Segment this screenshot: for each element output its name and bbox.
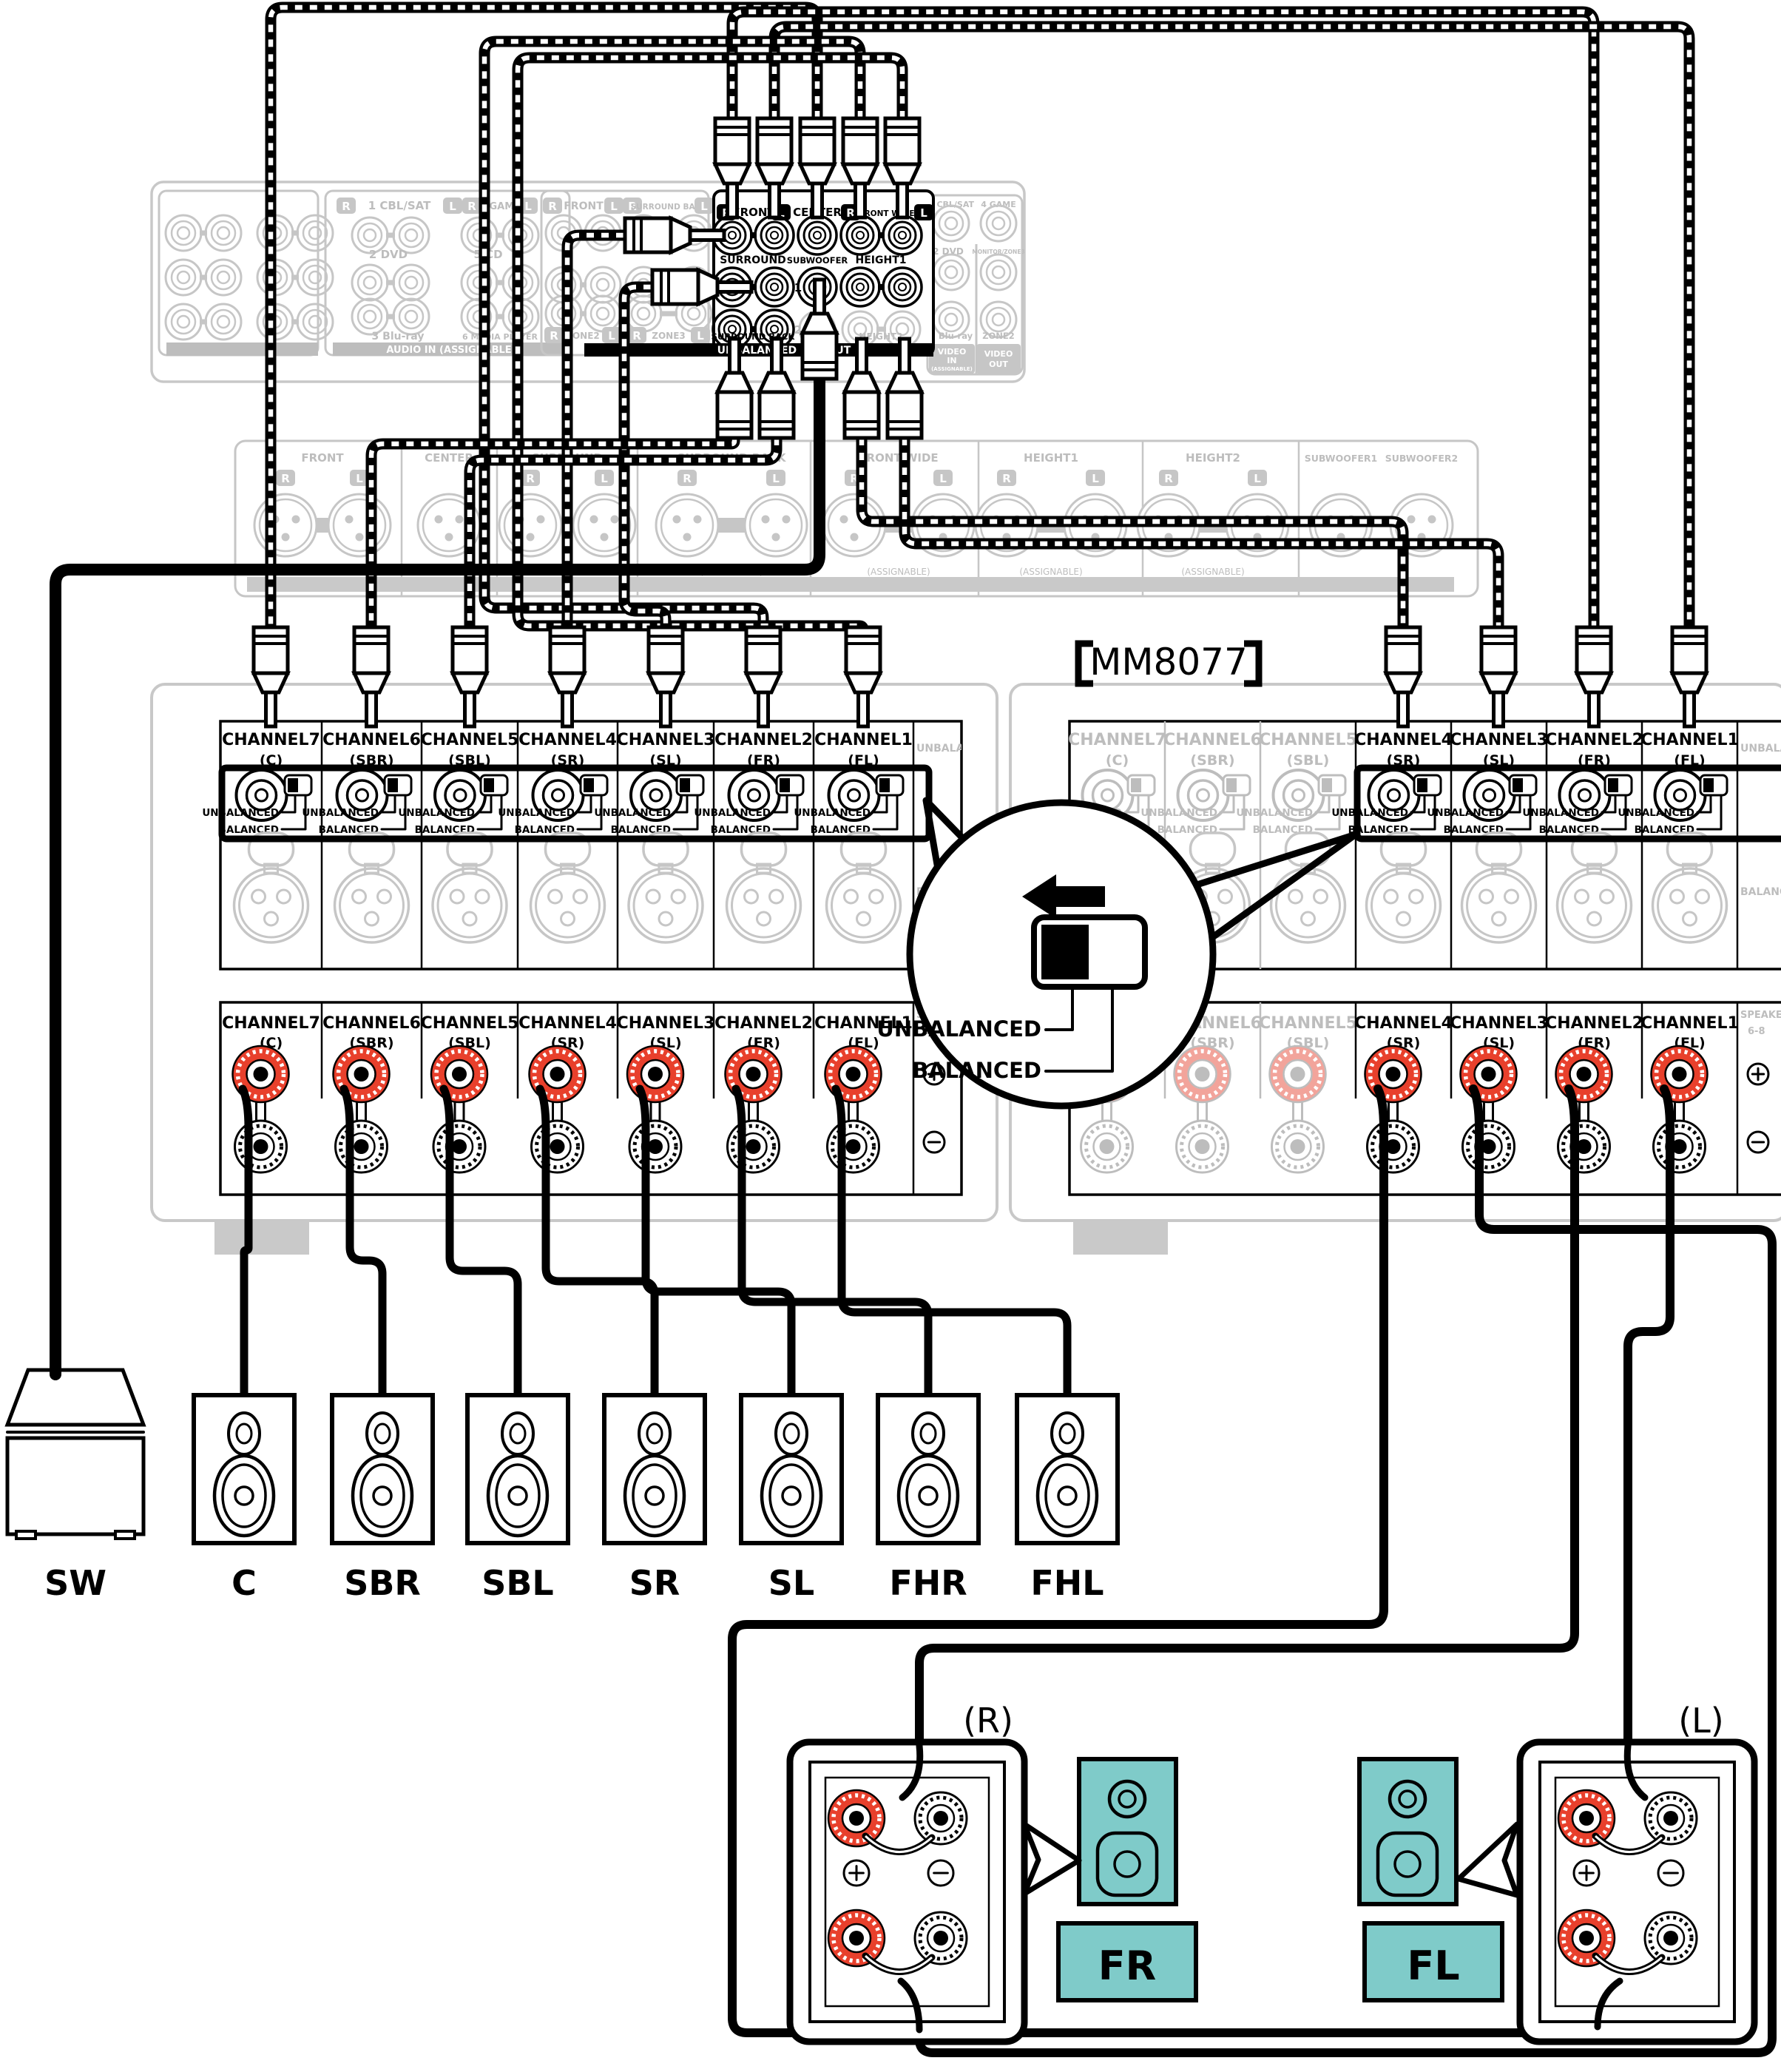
unbalanced-label: UNBALANCED (1522, 807, 1599, 819)
ring (746, 1067, 761, 1081)
xlr-link (317, 518, 328, 533)
ring (772, 533, 780, 541)
channel-name: CHANNEL5 (421, 731, 519, 749)
xlr-section-label: FRONT WIDE (859, 451, 938, 465)
badge-letter: R (342, 200, 351, 213)
balance-switch-knob (584, 778, 594, 792)
plug-body (652, 270, 698, 304)
rca-jack-gray (597, 279, 609, 291)
channel-name: CHANNEL4 (518, 1014, 617, 1033)
badge-letter: R (526, 472, 535, 485)
rca-jack-gray (364, 229, 376, 241)
rca-jack-gray (945, 266, 957, 278)
zone-label: ZONE3 (652, 331, 686, 341)
ring (762, 516, 770, 524)
channel-name: CHANNEL5 (1259, 1014, 1357, 1033)
channel-name: CHANNEL3 (1450, 1014, 1548, 1033)
plug-taper (717, 373, 751, 392)
plug-body (1672, 627, 1706, 673)
zone-label: FRONT (564, 200, 604, 212)
plug-taper (843, 164, 877, 183)
rca-jack-gray (405, 277, 417, 288)
badge-letter: L (700, 200, 708, 213)
preout-label: SUBWOOFER (787, 255, 848, 266)
plug-taper (550, 673, 584, 692)
rca-jack-gray (638, 308, 649, 320)
plug-body (746, 627, 780, 673)
fl-pointer (1459, 1824, 1517, 1895)
plug-pin (900, 339, 910, 373)
rca-jack-gray (212, 266, 235, 289)
jack-link-gray (496, 314, 504, 320)
plug-body (254, 627, 288, 673)
ring (354, 1067, 369, 1081)
ring (673, 516, 681, 524)
rca-jack-gray (939, 260, 963, 284)
plug-body (625, 218, 671, 252)
preout-label: SURROUND (720, 254, 786, 266)
rca-plug (550, 627, 584, 726)
ring (1428, 516, 1436, 524)
channel-name: CHANNEL1 (1640, 1014, 1739, 1033)
channel-name: CHANNEL2 (714, 731, 813, 749)
rca-jack-gray (178, 316, 189, 328)
edge-range: 6-8 (1748, 1026, 1765, 1037)
ring (1577, 1067, 1592, 1081)
badge-letter: L (610, 200, 618, 213)
jack-link-gray (386, 233, 395, 238)
edge-unbalanced: UNBALANCED (1740, 743, 1781, 755)
unbalanced-label: UNBALANCED (202, 807, 279, 819)
unbalanced-label: UNBALANCED (594, 807, 671, 819)
badge-letter: L (920, 206, 927, 220)
channel-name: CHANNEL4 (518, 731, 617, 749)
ring (1579, 1811, 1594, 1826)
badge-letter: L (697, 329, 704, 342)
badge-letter: L (772, 472, 780, 485)
jack-link-gray (200, 320, 207, 325)
video-out-label: OUT (989, 360, 1008, 369)
channel-assign: (SBR) (1190, 752, 1234, 769)
plug-body (1481, 627, 1515, 673)
plug-taper (354, 673, 388, 692)
video-in-note: (ASSIGNABLE) (931, 366, 973, 372)
ring (1579, 1931, 1594, 1946)
speaker-cable (1628, 1127, 1670, 1769)
ring (1481, 1067, 1496, 1081)
rca-plug (1481, 627, 1515, 726)
rca-jack-gray (172, 221, 195, 245)
speaker-cable (244, 1127, 249, 1400)
plug-pin (1589, 692, 1599, 726)
ring (550, 1067, 565, 1081)
channel-name: CHANNEL5 (421, 1014, 519, 1033)
rca-plug (1577, 627, 1611, 726)
front-right-channel-label: (R) (963, 1701, 1013, 1741)
unbalanced-label: UNBALANCED (302, 807, 379, 819)
ring (1291, 1139, 1305, 1154)
rca-plug (1386, 627, 1420, 726)
rca-jack-gray (987, 260, 1010, 284)
rca-jack-gray (358, 271, 382, 294)
xlr-assignable: (ASSIGNABLE) (867, 567, 930, 577)
unbalanced-label: UNBALANCED (1140, 807, 1217, 819)
badge-letter: R (467, 200, 476, 213)
plug-taper (649, 673, 683, 692)
plug-pin (859, 692, 868, 726)
preout-label: HEIGHT1 (856, 254, 907, 266)
ring (590, 516, 598, 524)
plug-body (760, 392, 794, 438)
xlr-assignable: (ASSIGNABLE) (1019, 567, 1082, 577)
unbalanced-label: UNBALANCED (694, 807, 771, 819)
badge-letter: L (449, 200, 456, 213)
edge-speakers: SPEAKERS (1740, 1010, 1781, 1021)
ring (846, 1067, 861, 1081)
balance-switch-knob (1513, 778, 1523, 792)
rca-jack-gray (309, 227, 321, 239)
plug-pin (465, 692, 475, 726)
badge-letter: L (601, 472, 608, 485)
channel-name: CHANNEL3 (617, 731, 715, 749)
edge-unbalanced: UNBALANCED (916, 743, 996, 755)
plug-pin (690, 231, 724, 240)
plug-taper (453, 673, 487, 692)
jack-link-gray (200, 231, 207, 236)
ring (933, 1811, 948, 1826)
audio-in-label: 3 Blu-ray (372, 331, 425, 342)
channel-name: CHANNEL3 (617, 1014, 715, 1033)
edge-balanced: BALANCED (1740, 886, 1781, 898)
badge-letter: R (1002, 472, 1011, 485)
jack-link-gray (386, 280, 395, 286)
speaker-cabinet (467, 1395, 568, 1543)
channel-name: CHANNEL3 (1450, 731, 1548, 749)
rca-jack-gray (591, 273, 615, 297)
video-out-label: VIDEO (984, 349, 1013, 359)
rca-jack-gray (303, 266, 327, 289)
rca-jack-gray (364, 277, 376, 288)
speaker-label: FHL (1030, 1563, 1104, 1603)
rca-jack-gray (405, 229, 417, 241)
badge-letter: R (548, 200, 557, 213)
ring (849, 1931, 864, 1946)
left-amp-foot (214, 1221, 309, 1255)
jack-link-gray (200, 275, 207, 280)
front-left-channel-label: (L) (1678, 1701, 1724, 1741)
badge-letter: R (550, 329, 558, 342)
plug-taper (757, 164, 791, 183)
plug-body (550, 627, 584, 673)
subwoofer-body (7, 1438, 143, 1534)
ring (846, 1139, 861, 1154)
ring (783, 516, 791, 524)
unbalanced-label: UNBALANCED (1236, 807, 1313, 819)
ring (1195, 1067, 1210, 1081)
badge-letter: L (356, 472, 363, 485)
unbalanced-label: UNBALANCED (1618, 807, 1694, 819)
plug-body (453, 627, 487, 673)
balance-switch-knob (388, 778, 398, 792)
ring (537, 516, 545, 524)
plug-pin (1494, 692, 1504, 726)
rca-jack-gray (399, 271, 423, 294)
rca-jack-gray (591, 302, 615, 325)
channel-name: CHANNEL6 (322, 1014, 421, 1033)
plug-taper (885, 164, 919, 183)
plug-pin (857, 339, 867, 373)
badge-letter: R (281, 472, 290, 485)
rca-jack-gray (364, 311, 376, 323)
ring (1195, 1139, 1210, 1154)
ring (694, 516, 702, 524)
badge-letter: L (1092, 472, 1099, 485)
channel-name: CHANNEL2 (1545, 731, 1643, 749)
plug-taper (845, 373, 879, 392)
speaker-label: SW (44, 1563, 107, 1603)
ring (1663, 1811, 1678, 1826)
ring (933, 1931, 948, 1946)
ring (746, 1139, 761, 1154)
rca-jack-gray (399, 305, 423, 328)
xlr-section-label: SUBWOOFER1 (1305, 453, 1377, 464)
plug-pin (661, 692, 671, 726)
ring (456, 516, 464, 524)
rca-jack-gray (987, 212, 1010, 235)
jack-link-gray (580, 283, 587, 288)
sub1-label: 1 (794, 281, 802, 294)
plug-body (715, 118, 749, 164)
xlr-output (499, 494, 561, 556)
plug-pin (759, 692, 768, 726)
plug-taper (1386, 673, 1420, 692)
ring (648, 1067, 663, 1081)
rca-jack-gray (309, 271, 321, 283)
xlr-section-label: SUBWOOFER2 (1385, 453, 1458, 464)
unbalanced-label: UNBALANCED (1331, 807, 1408, 819)
rca-plug (746, 627, 780, 726)
rca-jack-gray (993, 217, 1004, 229)
balance-switch-knob (879, 778, 890, 792)
rca-plug (846, 627, 880, 726)
speaker-cabinet (741, 1395, 842, 1543)
plug-pin (730, 339, 740, 373)
plug-body (843, 118, 877, 164)
rca-plug (1672, 627, 1706, 726)
unbalanced-label: UNBALANCED (794, 807, 871, 819)
audio-in-label: 1 CBL/SAT (368, 199, 431, 212)
rca-jack-gray (217, 316, 229, 328)
rca-jack-gray (358, 223, 382, 247)
plug-taper (254, 673, 288, 692)
callout-balanced-label: BALANCED (912, 1058, 1041, 1083)
bar (166, 342, 318, 356)
xlr-section-label: FRONT (301, 451, 344, 465)
plug-body (885, 118, 919, 164)
badge-letter: R (1164, 472, 1173, 485)
balance-switch-knob (288, 778, 298, 792)
fr-speaker-badge-label: FR (1098, 1943, 1156, 1989)
ring (445, 533, 453, 541)
rca-jack-gray (212, 221, 235, 245)
xlr-output (254, 494, 317, 556)
plug-pin (856, 183, 865, 217)
plug-taper (1481, 673, 1515, 692)
balance-switch-knob (1417, 778, 1427, 792)
rca-jack-gray (597, 308, 609, 320)
speaker-label: SBL (481, 1563, 554, 1603)
rca-plug (254, 627, 288, 726)
jack-link (878, 232, 885, 238)
plug-taper (1577, 673, 1611, 692)
jack-link-gray (291, 275, 299, 280)
xlr-link (718, 518, 745, 533)
rca-plug (453, 627, 487, 726)
rca-jack-gray (993, 266, 1004, 278)
rca-plug (354, 627, 388, 726)
fl-speaker-badge-label: FL (1407, 1943, 1459, 1989)
channel-assign: (C) (1106, 752, 1129, 769)
plug-body (888, 392, 922, 438)
wiring-diagram: R1 CBL/SATLR4 GAMEL2 DVD5 CD3 Blu-ray6 M… (0, 0, 1781, 2072)
speaker-label: C (232, 1563, 257, 1603)
rca-jack-gray (358, 305, 382, 328)
ring (1386, 1067, 1401, 1081)
plug-taper (760, 373, 794, 392)
unbalanced-label: UNBALANCED (398, 807, 475, 819)
rca-jack-gray (309, 316, 321, 328)
ring (254, 1067, 268, 1081)
badge-letter: R (632, 329, 641, 342)
ring (452, 1139, 467, 1154)
video-label: 1 CBL/SAT (928, 200, 975, 209)
callout-unbalanced-label: UNBALANCED (876, 1016, 1041, 1042)
rca-jack-gray (993, 314, 1004, 325)
channel-name: CHANNEL7 (222, 731, 320, 749)
video-out-bar (976, 344, 1021, 374)
ring (851, 533, 859, 541)
ring (840, 516, 848, 524)
plug-pin (898, 183, 908, 217)
rca-jack-gray (178, 271, 189, 283)
ring (356, 533, 364, 541)
rca-jack-gray (945, 314, 957, 325)
channel-name: CHANNEL6 (1163, 731, 1262, 749)
jack-link-gray (386, 314, 395, 320)
ring (683, 533, 692, 541)
amp-model-label: MM8077 (1089, 641, 1248, 684)
xlr-output (745, 494, 807, 556)
plug-pin (772, 339, 782, 373)
channel-assign: (SBL) (1287, 752, 1330, 769)
balance-switch-knob (1703, 778, 1714, 792)
ring (345, 516, 354, 524)
speaker-label: FHR (889, 1563, 967, 1603)
channel-name: CHANNEL2 (714, 1014, 813, 1033)
badge-letter: L (1254, 472, 1261, 485)
plug-body (800, 118, 834, 164)
channel-name: CHANNEL1 (1640, 731, 1739, 749)
ring (601, 533, 609, 541)
xlr-bottom-bar (247, 577, 1454, 592)
xlr-output (328, 494, 391, 556)
plug-taper (715, 164, 749, 183)
rca-jack-gray (172, 266, 195, 289)
xlr-output (656, 494, 718, 556)
ring (611, 516, 619, 524)
plug-pin (266, 692, 276, 726)
plug-pin (813, 183, 822, 217)
channel-name: CHANNEL4 (1354, 731, 1453, 749)
ring (254, 1139, 268, 1154)
rca-plug (649, 627, 683, 726)
channel-name: CHANNEL2 (1545, 1014, 1643, 1033)
jack-link-gray (496, 233, 504, 238)
ring (435, 516, 443, 524)
plug-body (1386, 627, 1420, 673)
ring (292, 516, 300, 524)
speaker-cabinet (1017, 1395, 1118, 1543)
subwoofer-foot (115, 1531, 135, 1539)
rca-jack-gray (939, 212, 963, 235)
plug-pin (728, 183, 737, 217)
plug-pin (367, 692, 376, 726)
jack-link (878, 284, 885, 290)
plug-body (717, 392, 751, 438)
balance-switch-knob (680, 778, 690, 792)
badge-letter: L (524, 200, 532, 213)
plug-taper (846, 673, 880, 692)
plug-taper (1672, 673, 1706, 692)
speaker-cabinet (604, 1395, 705, 1543)
speaker-cabinet (194, 1395, 294, 1543)
channel-name: CHANNEL5 (1259, 731, 1357, 749)
balance-switch-knob (1608, 778, 1618, 792)
xlr-assignable: (ASSIGNABLE) (1181, 567, 1244, 577)
rca-jack-gray (303, 221, 327, 245)
unbalanced-label: UNBALANCED (498, 807, 575, 819)
plug-pin (770, 183, 780, 217)
ring (282, 533, 290, 541)
balance-switch-knob (1226, 778, 1237, 792)
subwoofer-top (7, 1370, 143, 1425)
audio-in-bar-label: AUDIO IN (ASSIGNABLE) (386, 345, 516, 356)
rca-jack-gray (987, 308, 1010, 331)
speaker-label: SBR (344, 1563, 421, 1603)
video-label: 3 Blu-ray (930, 331, 973, 341)
unbalanced-label: UNBALANCED (1427, 807, 1504, 819)
balance-switch-knob (780, 778, 790, 792)
rca-jack-gray (217, 271, 229, 283)
rca-jack-gray (405, 311, 417, 323)
ring (1672, 1067, 1687, 1081)
speaker-cabinet (878, 1395, 979, 1543)
plug-body (846, 627, 880, 673)
badge-letter: L (939, 472, 947, 485)
plug-pin (1399, 692, 1408, 726)
ring (849, 1811, 864, 1826)
subwoofer-foot (16, 1531, 36, 1539)
rca-jack-gray (945, 217, 957, 229)
plug-body (845, 392, 879, 438)
fr-pointer (1024, 1824, 1079, 1894)
balance-switch-knob (1131, 778, 1141, 792)
xlr-section-label: HEIGHT2 (1186, 451, 1240, 465)
plug-pin (563, 692, 572, 726)
audio-in-label: 2 DVD (369, 248, 408, 261)
ring (527, 533, 535, 541)
plug-taper (888, 373, 922, 392)
